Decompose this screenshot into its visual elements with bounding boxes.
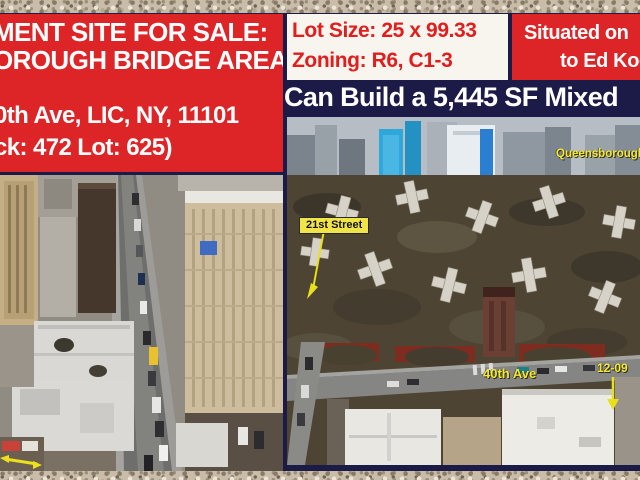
situated-line1: Situated on [524,22,629,45]
left-buildings [0,175,134,471]
banner-address-line1: 0th Ave, LIC, NY, 11101 [0,102,239,130]
lot-info-box: Lot Size: 25 x 99.33 Zoning: R6, C1-3 [287,14,508,80]
banner-title-line2: OROUGH BRIDGE AREA [0,45,283,76]
hotel-sign [200,241,217,255]
aerial-photo-street [0,175,283,471]
lot-size-text: Lot Size: 25 x 99.33 [292,19,477,43]
flyer-canvas: MENT SITE FOR SALE: OROUGH BRIDGE AREA 0… [0,0,640,480]
aerial-queensbridge-svg [287,117,640,465]
gravel-texture-top [0,0,640,13]
label-21st-street: 21st Street [299,217,369,234]
label-40th-ave: 40th Ave [483,366,536,381]
sale-banner: MENT SITE FOR SALE: OROUGH BRIDGE AREA 0… [0,14,283,172]
aerial-photo-queensbridge: 21st Street Queensborough B 40th Ave 12-… [287,117,640,465]
situated-line2: to Ed Koc [560,50,640,73]
banner-address-line2: ck: 472 Lot: 625) [0,134,172,162]
banner-title-line1: MENT SITE FOR SALE: [0,17,268,48]
label-lot-1209: 12-09 [597,361,628,375]
aerial-street-svg [0,175,283,471]
build-bar-text: Can Build a 5,445 SF Mixed [284,82,618,113]
gravel-texture-bottom [0,471,640,480]
build-bar: Can Build a 5,445 SF Mixed [284,81,640,116]
situated-box: Situated on to Ed Koc [512,14,640,80]
zoning-text: Zoning: R6, C1-3 [292,49,452,73]
label-queensborough-bridge: Queensborough B [556,148,640,160]
hotel-building [176,175,283,471]
